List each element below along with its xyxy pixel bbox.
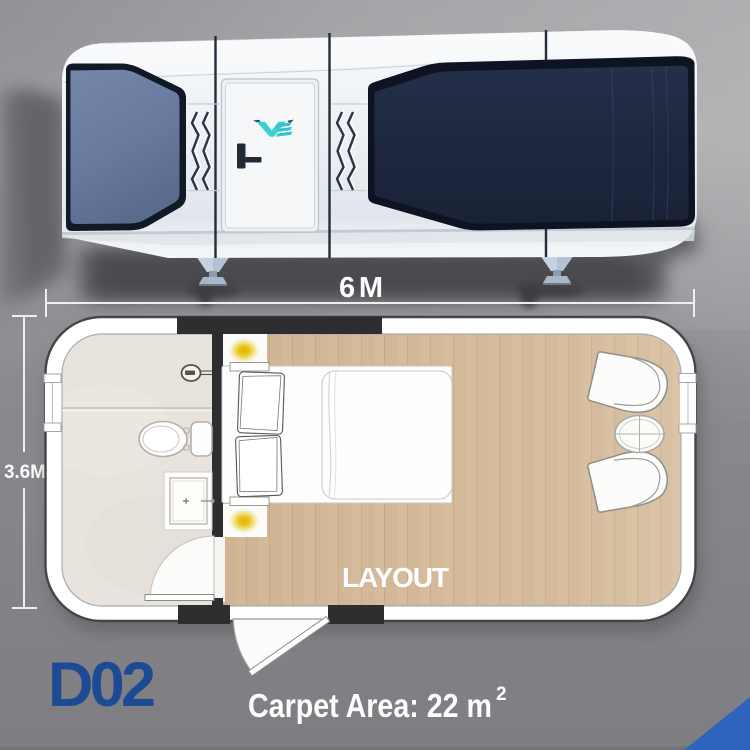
svg-text:D02: D02 [48,650,156,720]
svg-text:LAYOUT: LAYOUT [342,562,450,593]
svg-text:2: 2 [496,684,507,705]
svg-text:3.6M: 3.6M [4,462,46,483]
svg-text:6M: 6M [339,272,383,304]
svg-text:Carpet Area: 22 m: Carpet Area: 22 m [248,687,492,724]
